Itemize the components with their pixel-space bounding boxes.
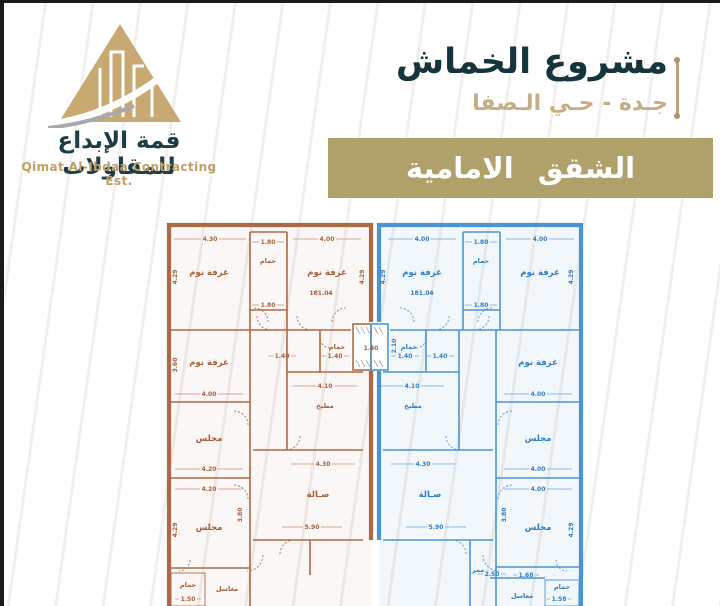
room-label-bedroom: غرفة نوم <box>402 268 442 278</box>
floor-plan: غرفة نوم حمام غرفة نوم 181.04 غرفة نوم م… <box>160 215 590 606</box>
svg-text:4.30: 4.30 <box>316 461 331 468</box>
room-label-hall: صـالة <box>307 490 330 500</box>
room-label-bathroom: حمام <box>180 581 197 589</box>
svg-text:4.00: 4.00 <box>531 466 546 473</box>
room-label-majlis: مجلس <box>525 434 552 444</box>
dimension-vertical: 3.80 <box>501 508 508 523</box>
room-label-bedroom: غرفة نوم <box>520 268 560 278</box>
page-top-border <box>0 0 720 3</box>
svg-text:1.68: 1.68 <box>519 572 534 579</box>
decorative-divider-line <box>676 62 679 114</box>
room-label-bedroom: غرفة نوم <box>189 358 229 368</box>
dimension-vertical: 4.29 <box>568 523 575 538</box>
room-label-majlis: مجلس <box>196 523 223 533</box>
svg-text:5.90: 5.90 <box>305 524 320 531</box>
svg-text:4.00: 4.00 <box>415 236 430 243</box>
svg-text:1.58: 1.58 <box>552 596 567 603</box>
svg-text:1.80: 1.80 <box>261 239 276 246</box>
svg-text:4.00: 4.00 <box>533 236 548 243</box>
dimension-vertical: 4.29 <box>568 270 575 285</box>
right-unit-highlight <box>379 225 581 606</box>
left-unit-highlight <box>169 225 371 606</box>
service-shaft: 1.40 <box>351 322 390 371</box>
room-label-kitchen: مطبخ <box>316 402 334 410</box>
page-left-border <box>0 0 4 606</box>
svg-text:4.30: 4.30 <box>203 236 218 243</box>
dimension: 1.40 <box>364 345 379 352</box>
svg-text:4.30: 4.30 <box>416 461 431 468</box>
svg-text:4.10: 4.10 <box>405 383 420 390</box>
divider-dot-top <box>674 57 680 63</box>
svg-text:1.40: 1.40 <box>328 353 343 360</box>
room-label-bedroom: غرفة نوم <box>189 268 229 278</box>
room-label-corridor: ممر <box>471 566 484 574</box>
svg-text:4.00: 4.00 <box>320 236 335 243</box>
room-label-bathroom: حمام <box>329 343 346 351</box>
svg-text:4.20: 4.20 <box>202 466 217 473</box>
svg-text:2.50: 2.50 <box>485 571 500 578</box>
room-label-hall: صـالة <box>419 490 442 500</box>
dimension-vertical: 4.29 <box>172 523 179 538</box>
room-label-laundry: مغاسل <box>511 592 533 600</box>
svg-text:1.40: 1.40 <box>275 353 290 360</box>
room-label-laundry: مغاسل <box>216 585 238 593</box>
svg-text:5.90: 5.90 <box>429 524 444 531</box>
dimension-vertical: 4.29 <box>380 270 387 285</box>
flyer-page: قمة الإبداع للمقاولات Qimat Al-Ibdaa Con… <box>0 0 720 606</box>
room-label-kitchen: مطبخ <box>404 402 422 410</box>
section-banner: الشقق الامامية <box>328 138 713 198</box>
company-logo-icon <box>48 22 188 128</box>
room-label-bathroom: حمام <box>260 257 277 265</box>
svg-text:4.00: 4.00 <box>531 391 546 398</box>
dimension-vertical: 3.60 <box>172 358 179 373</box>
svg-text:4.00: 4.00 <box>531 486 546 493</box>
dimension-vertical: 2.10 <box>391 339 398 354</box>
dimension-vertical: 4.29 <box>172 270 179 285</box>
svg-text:1.50: 1.50 <box>181 596 196 603</box>
svg-text:4.10: 4.10 <box>318 383 333 390</box>
project-location: جـدة - حـي الـصفا <box>472 91 668 116</box>
svg-text:1.40: 1.40 <box>398 353 413 360</box>
company-name-english: Qimat Al-Ibdaa Contracting Est. <box>6 160 232 188</box>
room-label-bedroom: غرفة نوم <box>307 268 347 278</box>
room-label-bathroom: حمام <box>473 257 490 265</box>
svg-text:1.80: 1.80 <box>261 302 276 309</box>
room-label-bathroom: حمام <box>401 343 418 351</box>
svg-text:4.20: 4.20 <box>202 486 217 493</box>
divider-dot-bottom <box>674 113 680 119</box>
unit-area-value: 181.04 <box>410 290 433 297</box>
room-label-bedroom: غرفة نوم <box>518 358 558 368</box>
dimension-vertical: 4.29 <box>359 270 366 285</box>
svg-text:1.80: 1.80 <box>474 302 489 309</box>
room-label-bathroom: حمام <box>554 583 571 591</box>
unit-area-value: 181.04 <box>309 290 332 297</box>
svg-text:1.40: 1.40 <box>433 353 448 360</box>
dimension-vertical: 3.80 <box>237 508 244 523</box>
room-label-majlis: مجلس <box>196 434 223 444</box>
project-title: مشروع الخماش <box>396 42 668 82</box>
svg-text:1.80: 1.80 <box>474 239 489 246</box>
room-label-majlis: مجلس <box>525 523 552 533</box>
svg-text:4.00: 4.00 <box>202 391 217 398</box>
banner-label: الشقق الامامية <box>406 151 635 185</box>
